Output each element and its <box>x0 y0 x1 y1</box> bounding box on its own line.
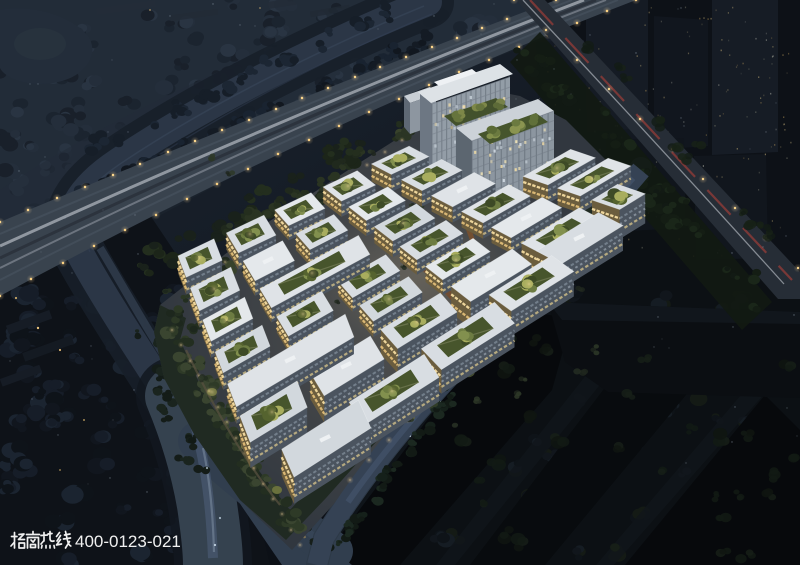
svg-text:400-0123-021: 400-0123-021 <box>75 532 181 551</box>
